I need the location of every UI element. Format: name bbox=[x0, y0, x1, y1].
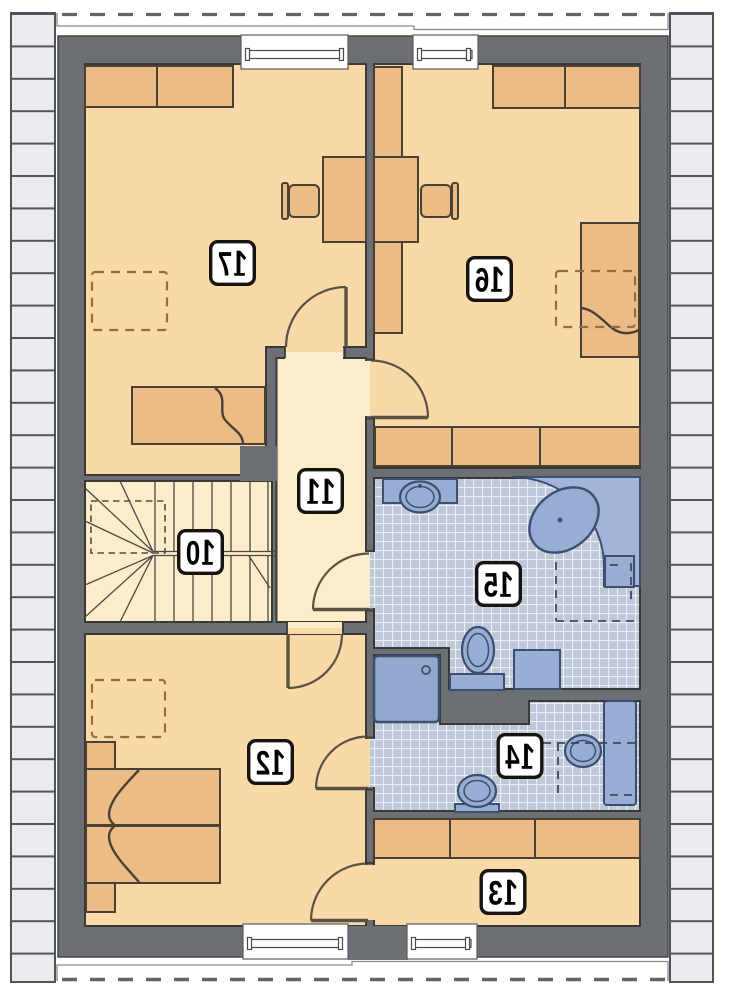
svg-text:2: 2 bbox=[256, 744, 271, 782]
svg-text:3: 3 bbox=[488, 874, 503, 912]
svg-text:4: 4 bbox=[505, 738, 520, 776]
svg-text:6: 6 bbox=[475, 261, 490, 299]
svg-text:0: 0 bbox=[186, 534, 201, 572]
svg-text:7: 7 bbox=[218, 245, 233, 283]
svg-text:5: 5 bbox=[484, 566, 499, 604]
